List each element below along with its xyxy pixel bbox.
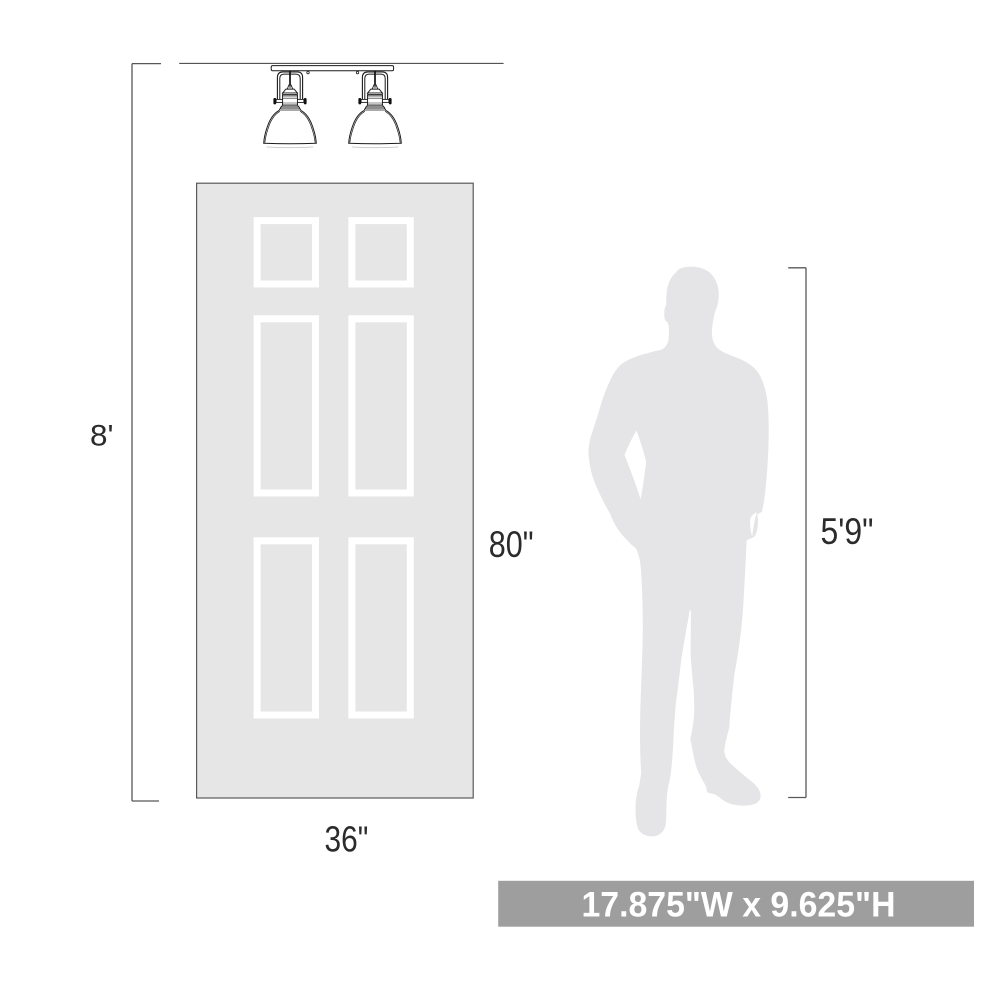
svg-text:17.875"W x 9.625"H: 17.875"W x 9.625"H xyxy=(582,885,896,924)
svg-text:8': 8' xyxy=(90,420,114,453)
svg-text:36": 36" xyxy=(325,819,369,860)
svg-text:5'9": 5'9" xyxy=(821,511,874,552)
svg-text:80": 80" xyxy=(489,524,534,565)
